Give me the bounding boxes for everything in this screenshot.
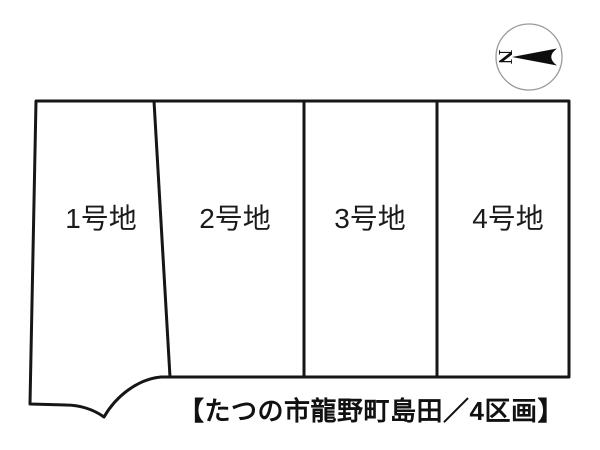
compass-north-label: N [494, 50, 516, 65]
plot-label-2: 2号地 [199, 204, 271, 235]
plot-layout-canvas: N 1号地 2号地 3号地 4号地 【たつの市龍野町島田／4区画】 [0, 0, 600, 450]
location-caption: 【たつの市龍野町島田／4区画】 [178, 391, 564, 428]
compass-arrow-icon [512, 49, 557, 66]
plot-divider-1-2 [154, 101, 170, 377]
plot-label-3: 3号地 [334, 204, 406, 235]
plot-label-1: 1号地 [65, 204, 137, 235]
north-compass-icon: N [494, 24, 562, 90]
plot-label-4: 4号地 [472, 204, 544, 235]
parcel-outline [30, 101, 569, 417]
